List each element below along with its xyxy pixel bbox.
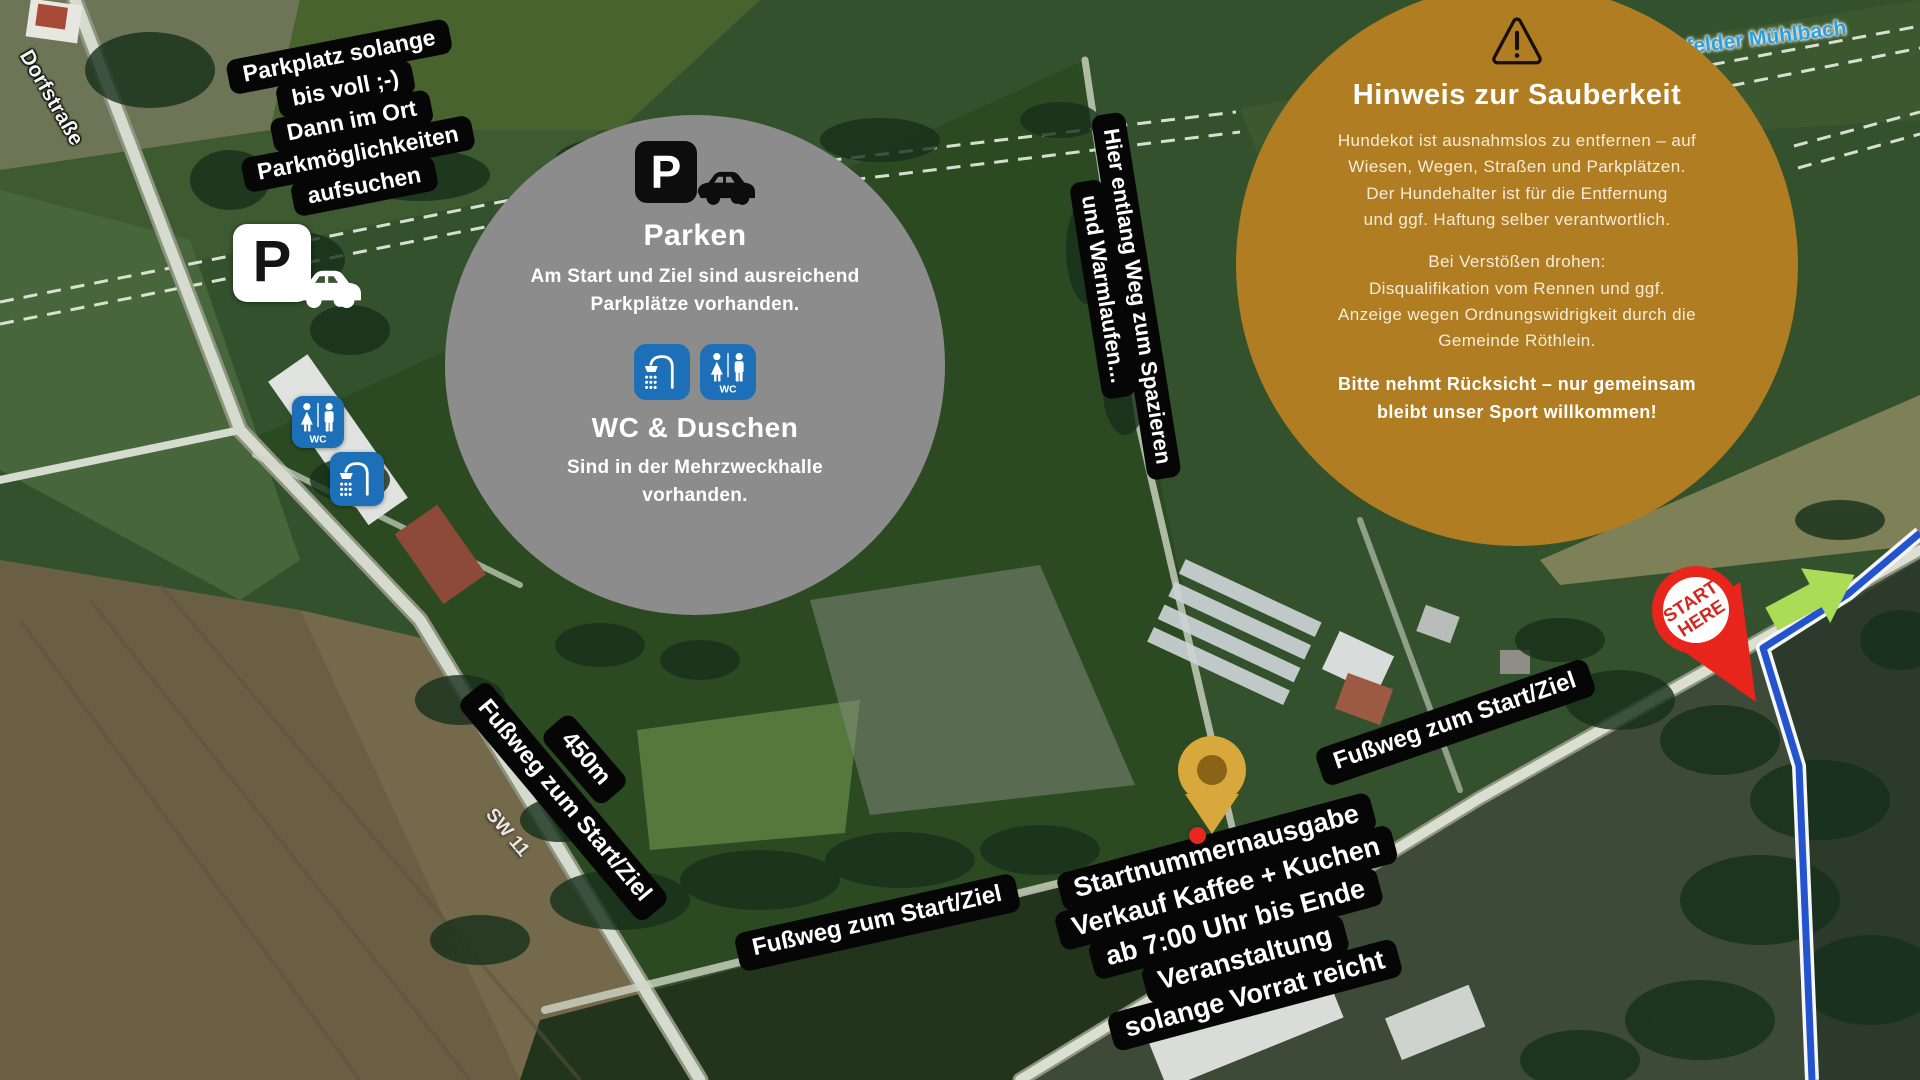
- notice-line: Hundekot ist ausnahmslos zu entfernen – …: [1236, 128, 1798, 154]
- start-here-pin: START HERE: [1638, 556, 1778, 706]
- parking-icon-group: P: [445, 141, 945, 203]
- wc-icon-label: WC: [309, 435, 327, 446]
- notice-line: Der Hundehalter ist für die Entfernung: [1236, 181, 1798, 207]
- wc-text-line: Sind in der Mehrzweckhalle: [445, 454, 945, 482]
- wc-duschen-title: WC & Duschen: [445, 412, 945, 444]
- shower-icon: [333, 455, 381, 503]
- wc-icon: WC: [294, 398, 342, 446]
- cleanliness-notice-circle: Hinweis zur Sauberkeit Hundekot ist ausn…: [1236, 0, 1798, 546]
- wc-duschen-text: Sind in der Mehrzweckhalle vorhanden.: [445, 454, 945, 509]
- parking-sign-marker: P: [233, 224, 383, 314]
- notice-line: Gemeinde Röthlein.: [1236, 328, 1798, 354]
- notice-line: Anzeige wegen Ordnungswidrigkeit durch d…: [1236, 302, 1798, 328]
- parking-info-circle: P Parken Am Start und Ziel sind ausreich…: [445, 115, 945, 615]
- notice-paragraph-1: Hundekot ist ausnahmslos zu entfernen – …: [1236, 128, 1798, 233]
- parking-p-icon: P: [635, 141, 697, 203]
- notice-line: Disqualifikation vom Rennen und ggf.: [1236, 276, 1798, 302]
- notice-line: bleibt unser Sport willkommen!: [1236, 399, 1798, 427]
- wc-icon-tile: WC: [700, 344, 756, 400]
- registration-point-dot: [1189, 827, 1206, 844]
- notice-paragraph-2: Bei Verstößen drohen: Disqualifikation v…: [1236, 249, 1798, 354]
- notice-line: und ggf. Haftung selber verantwortlich.: [1236, 207, 1798, 233]
- wc-map-icon: WC: [292, 396, 344, 448]
- notice-title: Hinweis zur Sauberkeit: [1236, 79, 1798, 112]
- notice-line: Bei Verstößen drohen:: [1236, 249, 1798, 275]
- warning-icon: [1488, 14, 1546, 68]
- parken-text-line: Am Start und Ziel sind ausreichend: [445, 263, 945, 291]
- wc-text-line: vorhanden.: [445, 482, 945, 510]
- parken-text-line: Parkplätze vorhanden.: [445, 291, 945, 319]
- registration-pin-icon: [1165, 728, 1260, 838]
- car-icon: [693, 164, 755, 205]
- notice-line: Wiesen, Wegen, Straßen und Parkplätzen.: [1236, 154, 1798, 180]
- parken-title: Parken: [445, 219, 945, 253]
- wc-icon: WC: [704, 348, 752, 396]
- car-icon: [291, 262, 361, 308]
- notice-line: Bitte nehmt Rücksicht – nur gemeinsam: [1236, 371, 1798, 399]
- shower-icon: [638, 348, 686, 396]
- shower-icon-tile: [634, 344, 690, 400]
- parken-text: Am Start und Ziel sind ausreichend Parkp…: [445, 263, 945, 318]
- event-map-infographic: Dorfstraße SW 11 felder Mühlbach Parkpla…: [0, 0, 1920, 1080]
- wc-icon-label: WC: [719, 385, 737, 396]
- shower-map-icon: [330, 452, 384, 506]
- notice-paragraph-3: Bitte nehmt Rücksicht – nur gemeinsam bl…: [1236, 371, 1798, 427]
- wc-shower-icon-group: WC: [445, 344, 945, 400]
- route-direction-arrow: [1758, 552, 1868, 642]
